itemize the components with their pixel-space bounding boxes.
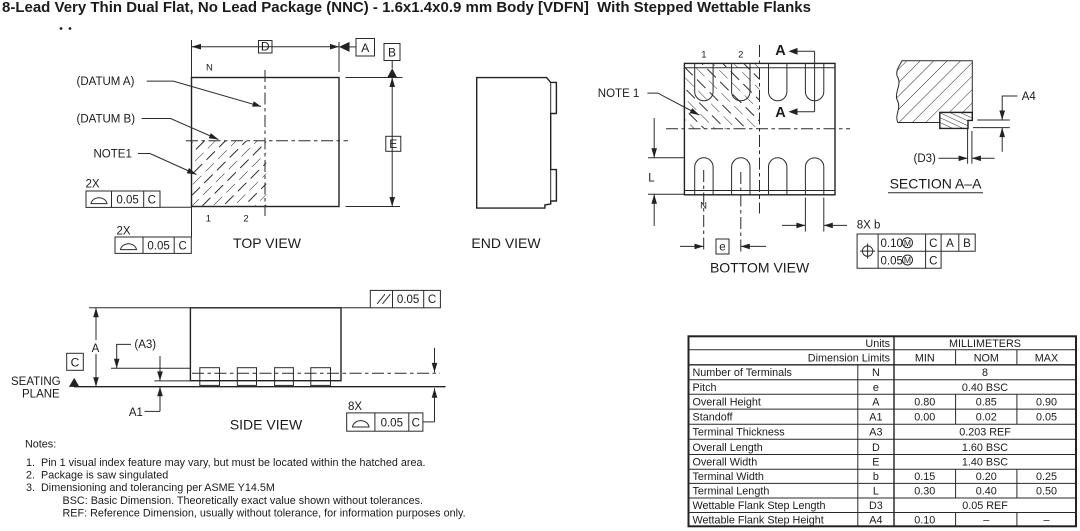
svg-text:2X: 2X [86,179,100,191]
svg-text:Overall Width: Overall Width [693,457,758,469]
svg-text:C: C [179,241,187,253]
svg-text:A1: A1 [129,407,143,419]
svg-text:C: C [71,356,80,370]
svg-text:0.25: 0.25 [1036,471,1057,483]
svg-text:A: A [946,238,954,250]
svg-text:Terminal Width: Terminal Width [693,471,764,483]
svg-text:0.30: 0.30 [914,486,935,498]
svg-text:Dimension Limits: Dimension Limits [808,352,891,364]
svg-text:2X: 2X [117,226,131,238]
svg-text:SIDE VIEW: SIDE VIEW [230,417,303,433]
svg-text:1.40 BSC: 1.40 BSC [962,457,1008,469]
svg-text:NOTE 1: NOTE 1 [598,88,640,100]
svg-text:NOM: NOM [974,352,999,364]
svg-text:A4: A4 [869,514,882,526]
svg-text:BOTTOM VIEW: BOTTOM VIEW [710,260,810,276]
svg-text:SECTION A–A: SECTION A–A [890,176,982,192]
svg-text:N: N [206,63,213,74]
svg-text:MAX: MAX [1035,352,1058,364]
svg-text:E: E [389,137,397,151]
svg-text:0.00: 0.00 [914,412,935,424]
svg-text:END VIEW: END VIEW [471,235,541,251]
svg-text:L: L [648,173,655,185]
svg-text:0.90: 0.90 [1036,397,1057,409]
svg-text:0.05: 0.05 [881,255,903,267]
svg-text:N: N [700,201,707,212]
svg-text:0.05: 0.05 [397,294,419,306]
svg-text:0.10: 0.10 [914,514,935,526]
svg-text:B: B [963,238,971,250]
svg-text:A: A [872,397,880,409]
svg-text:0.02: 0.02 [976,412,997,424]
svg-text:TOP VIEW: TOP VIEW [233,235,302,251]
svg-text:Pitch: Pitch [693,382,717,394]
svg-text:0.05: 0.05 [381,418,403,430]
svg-text:D3: D3 [869,500,883,512]
svg-text:A: A [775,105,786,121]
svg-text:0.05: 0.05 [147,241,169,253]
svg-text:0.05 REF: 0.05 REF [962,500,1008,512]
svg-text:0.80: 0.80 [914,397,935,409]
svg-text:A3: A3 [869,427,882,439]
svg-text:3. Dimensioning and toleranci: 3. Dimensioning and tolerancing per ASME… [26,482,275,494]
svg-text:BSC: Basic Dimension. Theoreti: BSC: Basic Dimension. Theoretically exac… [63,495,423,507]
svg-text:(DATUM B): (DATUM B) [77,114,136,126]
svg-text:M: M [904,255,911,265]
svg-text:MILLIMETERS: MILLIMETERS [949,338,1021,350]
svg-text:A: A [775,43,786,59]
svg-text:8X b: 8X b [857,220,881,232]
svg-text:Terminal Thickness: Terminal Thickness [693,427,786,439]
svg-text:Terminal Length: Terminal Length [693,486,770,498]
svg-text:(A3): (A3) [134,339,156,351]
svg-text:Standoff: Standoff [693,412,734,424]
svg-text:A1: A1 [869,412,882,424]
svg-text:(DATUM A): (DATUM A) [77,76,135,88]
svg-text:b: b [873,471,879,483]
svg-text:–: – [1043,514,1049,526]
svg-text:–: – [983,514,989,526]
svg-text:2: 2 [738,50,743,61]
svg-text:Notes:: Notes: [25,439,56,451]
svg-text:L: L [873,486,879,498]
svg-text:M: M [904,238,911,248]
svg-text:C: C [428,294,436,306]
svg-text:Wettable Flank Step Length: Wettable Flank Step Length [693,500,826,512]
svg-text:0.40 BSC: 0.40 BSC [962,382,1008,394]
svg-text:0.50: 0.50 [1036,486,1057,498]
svg-text:C: C [929,238,937,250]
svg-text:0.10: 0.10 [881,238,903,250]
svg-text:A4: A4 [1022,91,1037,103]
svg-text:1: 1 [701,50,706,61]
svg-text:Wettable Flank Step Height: Wettable Flank Step Height [693,514,824,526]
svg-text:0.20: 0.20 [976,471,997,483]
svg-text:Number of Terminals: Number of Terminals [693,367,793,379]
svg-text:e: e [873,382,879,394]
svg-text:1: 1 [206,214,211,225]
svg-text:D: D [261,40,270,54]
svg-text:NOTE1: NOTE1 [94,149,132,161]
svg-text:0.05: 0.05 [116,195,138,207]
svg-text:2. Package is saw singulated: 2. Package is saw singulated [26,470,168,482]
svg-text:Units: Units [865,338,890,350]
svg-text:A: A [92,343,100,355]
svg-text:MIN: MIN [915,352,935,364]
svg-text:1.60 BSC: 1.60 BSC [962,442,1008,454]
svg-text:(D3): (D3) [914,153,937,165]
svg-text:Overall Length: Overall Length [693,442,763,454]
svg-text:0.85: 0.85 [976,397,997,409]
svg-text:e: e [719,242,725,254]
svg-text:2: 2 [243,214,248,225]
svg-text:Overall Height: Overall Height [693,397,761,409]
svg-text:E: E [872,457,879,469]
svg-text:C: C [412,418,420,430]
svg-text:C: C [929,255,937,267]
svg-text:SEATING: SEATING [11,376,61,388]
svg-text:8-Lead Very Thin Dual Flat, No: 8-Lead Very Thin Dual Flat, No Lead Pack… [2,0,811,16]
svg-text:B: B [388,46,396,60]
svg-text:D: D [872,442,880,454]
svg-text:REF: Reference Dimension, usua: REF: Reference Dimension, usually withou… [63,507,466,519]
svg-text:8X: 8X [348,401,362,413]
svg-text:C: C [148,195,156,207]
svg-text:8: 8 [982,367,988,379]
svg-text:A: A [361,41,369,55]
svg-text:PLANE: PLANE [22,388,60,400]
svg-text:0.05: 0.05 [1036,412,1057,424]
svg-text:0.40: 0.40 [976,486,997,498]
svg-text:0.15: 0.15 [914,471,935,483]
svg-text:N: N [872,367,880,379]
svg-text:0.203 REF: 0.203 REF [959,427,1011,439]
svg-text:1. Pin 1 visual index feature: 1. Pin 1 visual index feature may vary, … [26,457,426,469]
